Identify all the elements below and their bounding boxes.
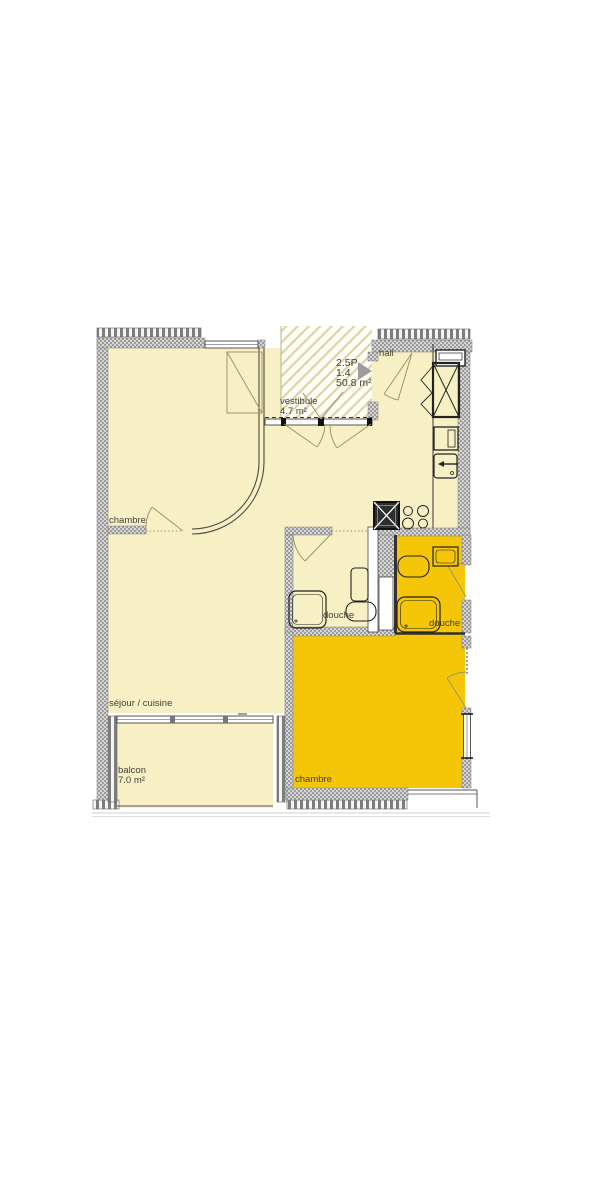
label-sejour: séjour / cuisine	[109, 699, 172, 709]
window-band-balcony	[117, 714, 273, 723]
balcony-rail-left	[108, 716, 117, 802]
unit-area: 50.8 m²	[336, 378, 372, 388]
label-douche-w: douche	[323, 611, 354, 621]
band-top-left	[97, 328, 201, 337]
label-balcon: balcon 7.0 m²	[118, 766, 146, 786]
window-chambre-nw	[205, 341, 258, 348]
room-balcon	[112, 716, 273, 808]
vestibule-area: 4.7 m²	[280, 407, 318, 417]
shaft-icon	[374, 502, 399, 529]
label-chambre-nw: chambre	[109, 516, 146, 526]
label-vestibule: vestibule 4.7 m²	[280, 397, 318, 417]
floor-plan-drawing	[0, 0, 600, 1200]
unit-info: 2.5P 1.4 50.8 m²	[336, 358, 372, 388]
band-top-right	[378, 329, 470, 339]
band-bottom-right	[287, 800, 407, 809]
balcon-area: 7.0 m²	[118, 776, 146, 786]
window-band-vestibule	[265, 418, 372, 427]
room-chambre-se-highlight	[291, 634, 465, 788]
label-chambre-se: chambre	[295, 775, 332, 785]
floor-plan-page: { "unit": { "type": "2.5P", "id": "1.4",…	[0, 0, 600, 1200]
label-hall: hall	[379, 349, 394, 359]
label-douche-e: douche	[429, 619, 460, 629]
room-sejour-mid	[263, 420, 378, 632]
